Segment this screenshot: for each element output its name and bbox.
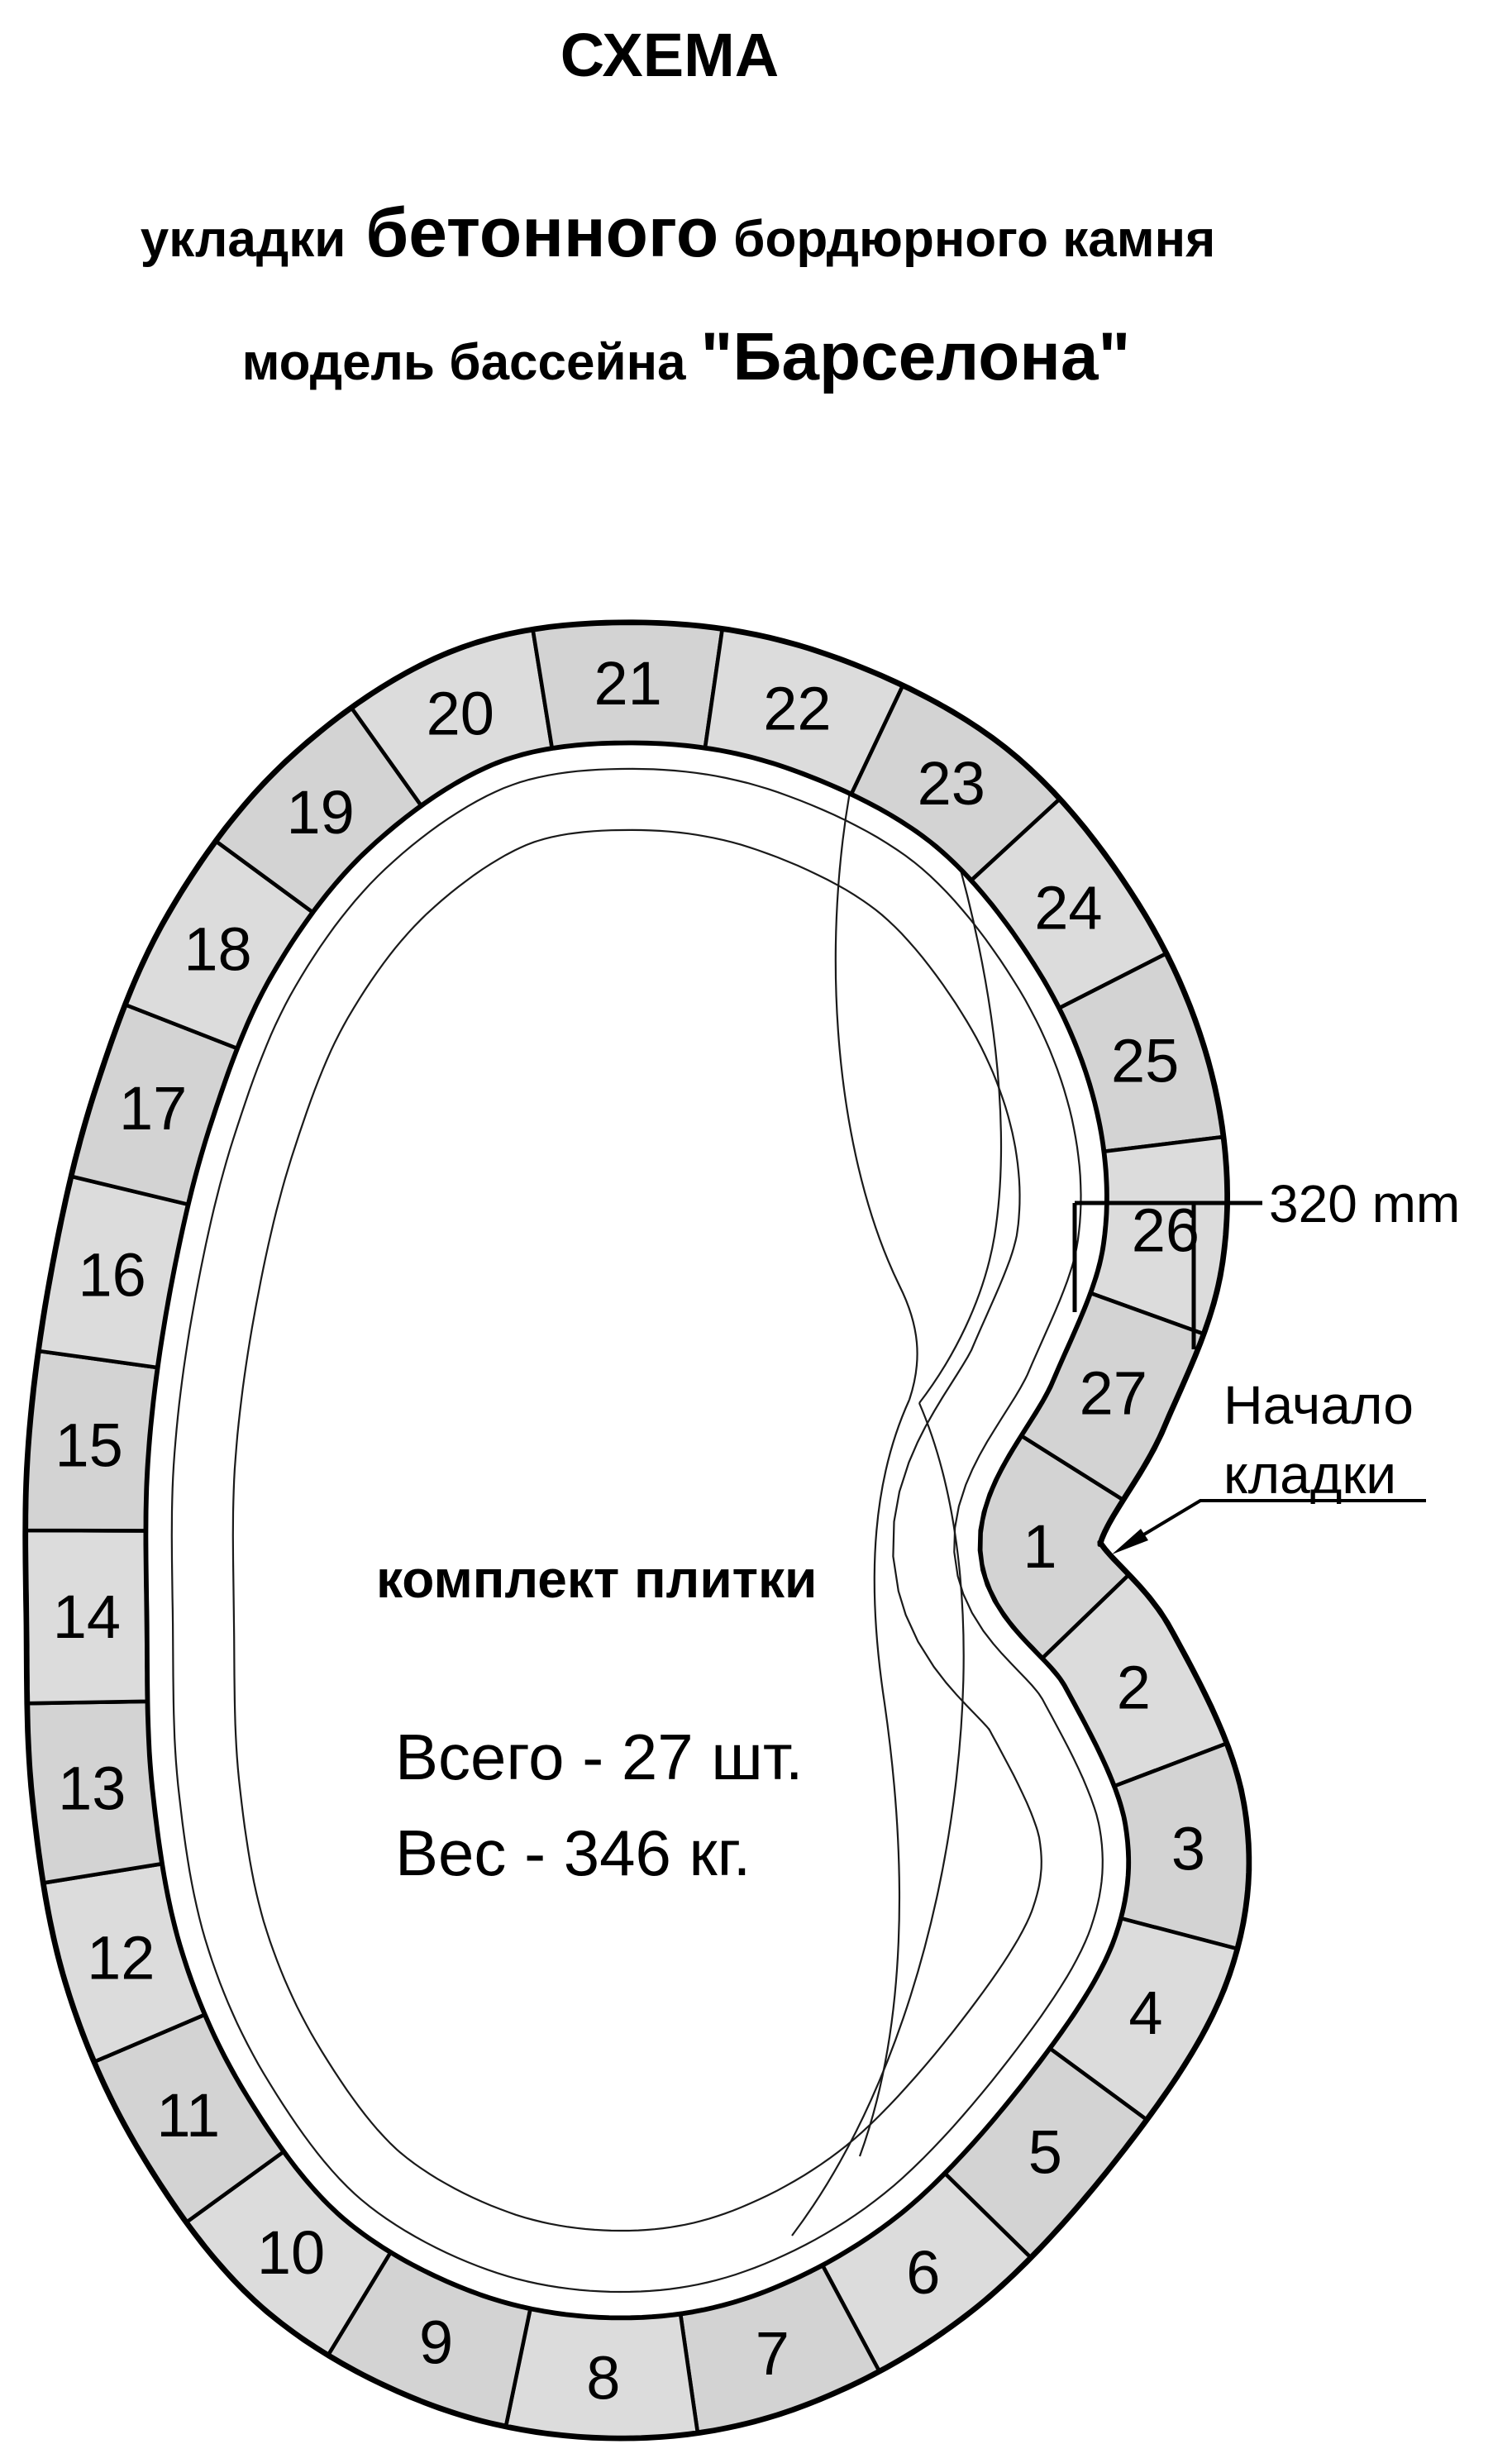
subtitle-word-concrete: бетонного — [365, 193, 718, 271]
tile-number: 24 — [1034, 873, 1102, 942]
kit-heading: комплект плитки — [376, 1549, 817, 1609]
tile-number: 7 — [756, 2319, 789, 2388]
tile-number: 3 — [1171, 1815, 1205, 1883]
tile-number: 1 — [1023, 1512, 1056, 1581]
tile-number: 15 — [55, 1411, 122, 1479]
tile-number: 17 — [119, 1074, 187, 1143]
tile-number: 21 — [594, 649, 662, 718]
subtitle-word-laying: укладки — [141, 211, 346, 268]
tile-number: 16 — [79, 1241, 146, 1310]
page-title: СХЕМА — [560, 21, 779, 89]
kit-total-pieces: Всего - 27 шт. — [395, 1721, 804, 1793]
tile-number: 25 — [1111, 1027, 1179, 1096]
subtitle-word-border-stone: бордюрного камня — [733, 211, 1215, 268]
start-label-line1: Начало — [1223, 1374, 1414, 1435]
tile-number: 5 — [1028, 2117, 1062, 2186]
tile-number: 8 — [586, 2344, 620, 2413]
dimension-value: 320 mm — [1269, 1174, 1460, 1234]
tile-number: 9 — [419, 2308, 453, 2377]
tile-number: 22 — [763, 674, 831, 742]
kit-total-weight: Вес - 346 кг. — [395, 1816, 751, 1889]
tile-number: 26 — [1132, 1196, 1200, 1265]
pool-model-name: "Барселона" — [701, 319, 1131, 394]
tile-number: 4 — [1128, 1979, 1162, 2047]
tile-number: 14 — [53, 1582, 121, 1651]
tile-number: 11 — [156, 2081, 220, 2150]
tile-number: 12 — [87, 1923, 155, 1992]
tile-number: 13 — [58, 1754, 126, 1823]
schema-page: СХЕМА укладкибетонногобордюрного камня м… — [0, 0, 1512, 2444]
tile-number: 23 — [918, 749, 985, 818]
tile-number: 18 — [184, 915, 251, 984]
pool-tile-schema: СХЕМА укладкибетонногобордюрного камня м… — [0, 0, 1512, 2444]
tile-number: 6 — [906, 2238, 940, 2307]
tile-number: 27 — [1080, 1358, 1147, 1427]
tile-number: 10 — [257, 2218, 325, 2287]
pool-model-label: модель бассейна — [242, 334, 686, 391]
start-label-line2: кладки — [1223, 1444, 1396, 1505]
tile-number: 2 — [1117, 1654, 1151, 1722]
tile-number: 20 — [427, 680, 494, 748]
tile-number: 19 — [287, 778, 355, 847]
